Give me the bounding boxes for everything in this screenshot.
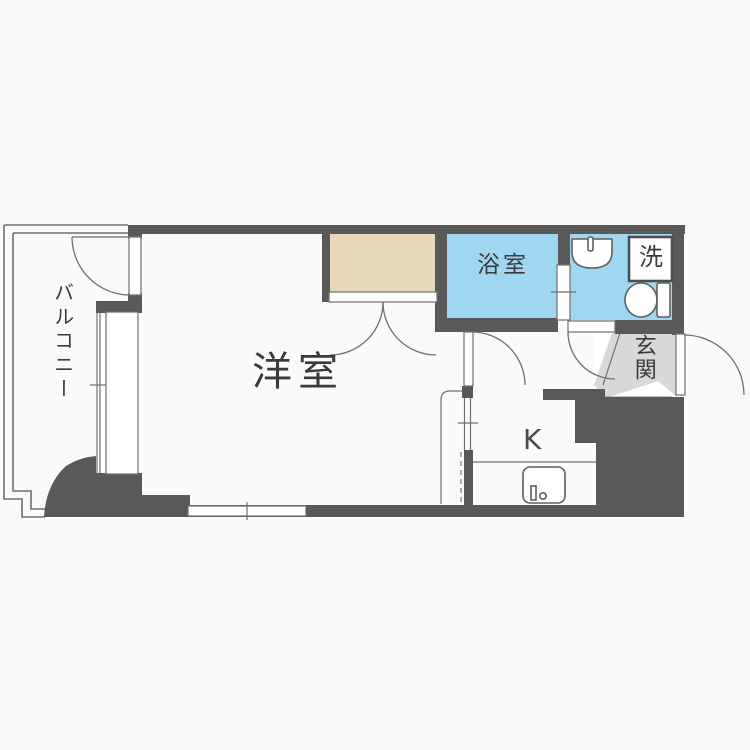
balcony-door-opening [129,237,141,295]
room-door-leaf [464,332,473,386]
sink-faucet-icon [531,486,536,500]
balcony-door-swing-icon [72,237,130,295]
western-room-label: 洋室 [252,351,344,394]
entrance-door-swing-icon [684,335,744,395]
faucet-icon [588,237,593,251]
closet-door-opening [329,292,437,302]
balcony-label: バルコニー [51,282,73,402]
sink-drain-icon [540,493,546,499]
balcony-window-sash [106,312,138,474]
kitchen-label: K [523,425,541,455]
door-open-path-line [441,391,462,504]
closet-left-door-swing-icon [330,302,383,355]
closet-floor [330,234,437,292]
floor-plan-canvas: バルコニー 洋室 浴室 洗 玄関 K [0,0,750,750]
partition-window [465,398,471,450]
windows [90,312,478,520]
washer-space-label: 洗 [639,245,663,271]
entrance-door-leaf [676,334,685,395]
room-door-swing-icon [472,332,525,385]
washroom-door-leaf [568,321,615,332]
entrance-label: 玄関 [631,334,655,382]
closet-right-door-swing-icon [383,302,436,355]
toilet-bowl-icon [625,283,657,317]
bathroom-label: 浴室 [477,253,529,278]
curved-wall-corner [44,456,100,517]
toilet-tank-icon [657,283,670,317]
